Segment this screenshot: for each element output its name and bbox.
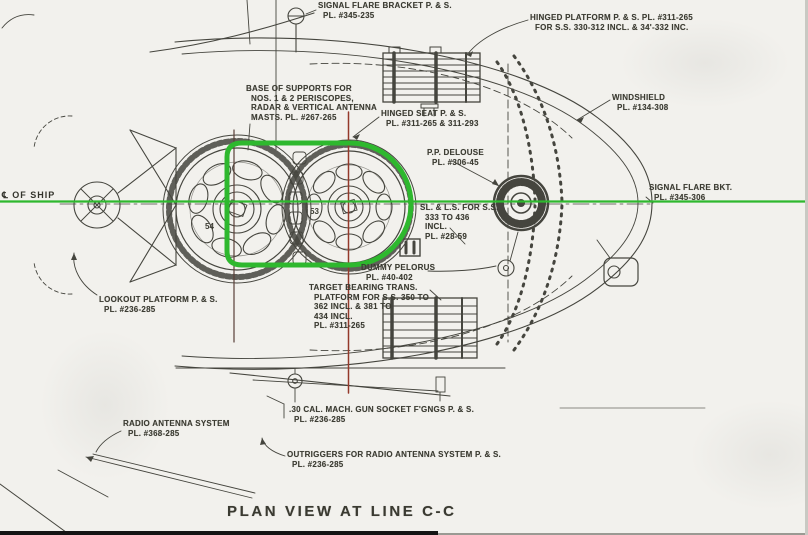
label-target-bearing-trans: TARGET BEARING TRANS.PLATFORM FOR S.S. 3…: [309, 283, 429, 331]
hinged-platform-structure-top: [383, 47, 480, 116]
scan-edge-artifact: [0, 531, 438, 535]
label-sl-ls-for-ss: SL. & L.S. FOR S.S.333 TO 436INCL.PL. #2…: [420, 203, 499, 241]
label-signal-flare-bracket-top: SIGNAL FLARE BRACKET P. & S.PL. #345-235: [318, 1, 452, 20]
starboard-fitting: [597, 240, 638, 286]
label-base-of-supports: BASE OF SUPPORTS FORNOS. 1 & 2 PERISCOPE…: [246, 84, 377, 122]
label-mg-socket: .30 CAL. MACH. GUN SOCKET F'GNGS P. & S.…: [289, 405, 474, 424]
label-pp-delouse: P.P. DELOUSEPL. #306-45: [427, 148, 484, 167]
label-outriggers: OUTRIGGERS FOR RADIO ANTENNA SYSTEM P. &…: [287, 450, 501, 469]
label-lookout-platform: LOOKOUT PLATFORM P. & S.PL. #236-285: [99, 295, 218, 314]
mount-number-left: 54: [205, 222, 214, 231]
label-radio-antenna-system: RADIO ANTENNA SYSTEMPL. #368-285: [123, 419, 230, 438]
label-hinged-seat: HINGED SEAT P. & S.PL. #311-265 & 311-29…: [381, 109, 479, 128]
mast-structure: [34, 116, 176, 294]
blueprint-canvas: SIGNAL FLARE BRACKET P. & S.PL. #345-235…: [0, 0, 808, 535]
label-windshield: WINDSHIELDPL. #134-308: [612, 93, 668, 112]
mount-number-right: 53: [310, 207, 319, 216]
drawing-title: PLAN VIEW AT LINE C-C: [227, 503, 457, 520]
centerline-of-ship-label: ℄ OF SHIP: [2, 190, 55, 201]
label-dummy-pelorus: DUMMY PELORUSPL. #40-402: [361, 263, 435, 282]
pelorus-ring: [494, 176, 548, 276]
label-signal-flare-bkt-right: SIGNAL FLARE BKT.PL. #345-306: [649, 183, 732, 202]
label-hinged-platform: HINGED PLATFORM P. & S. PL. #311-265FOR …: [530, 13, 693, 32]
